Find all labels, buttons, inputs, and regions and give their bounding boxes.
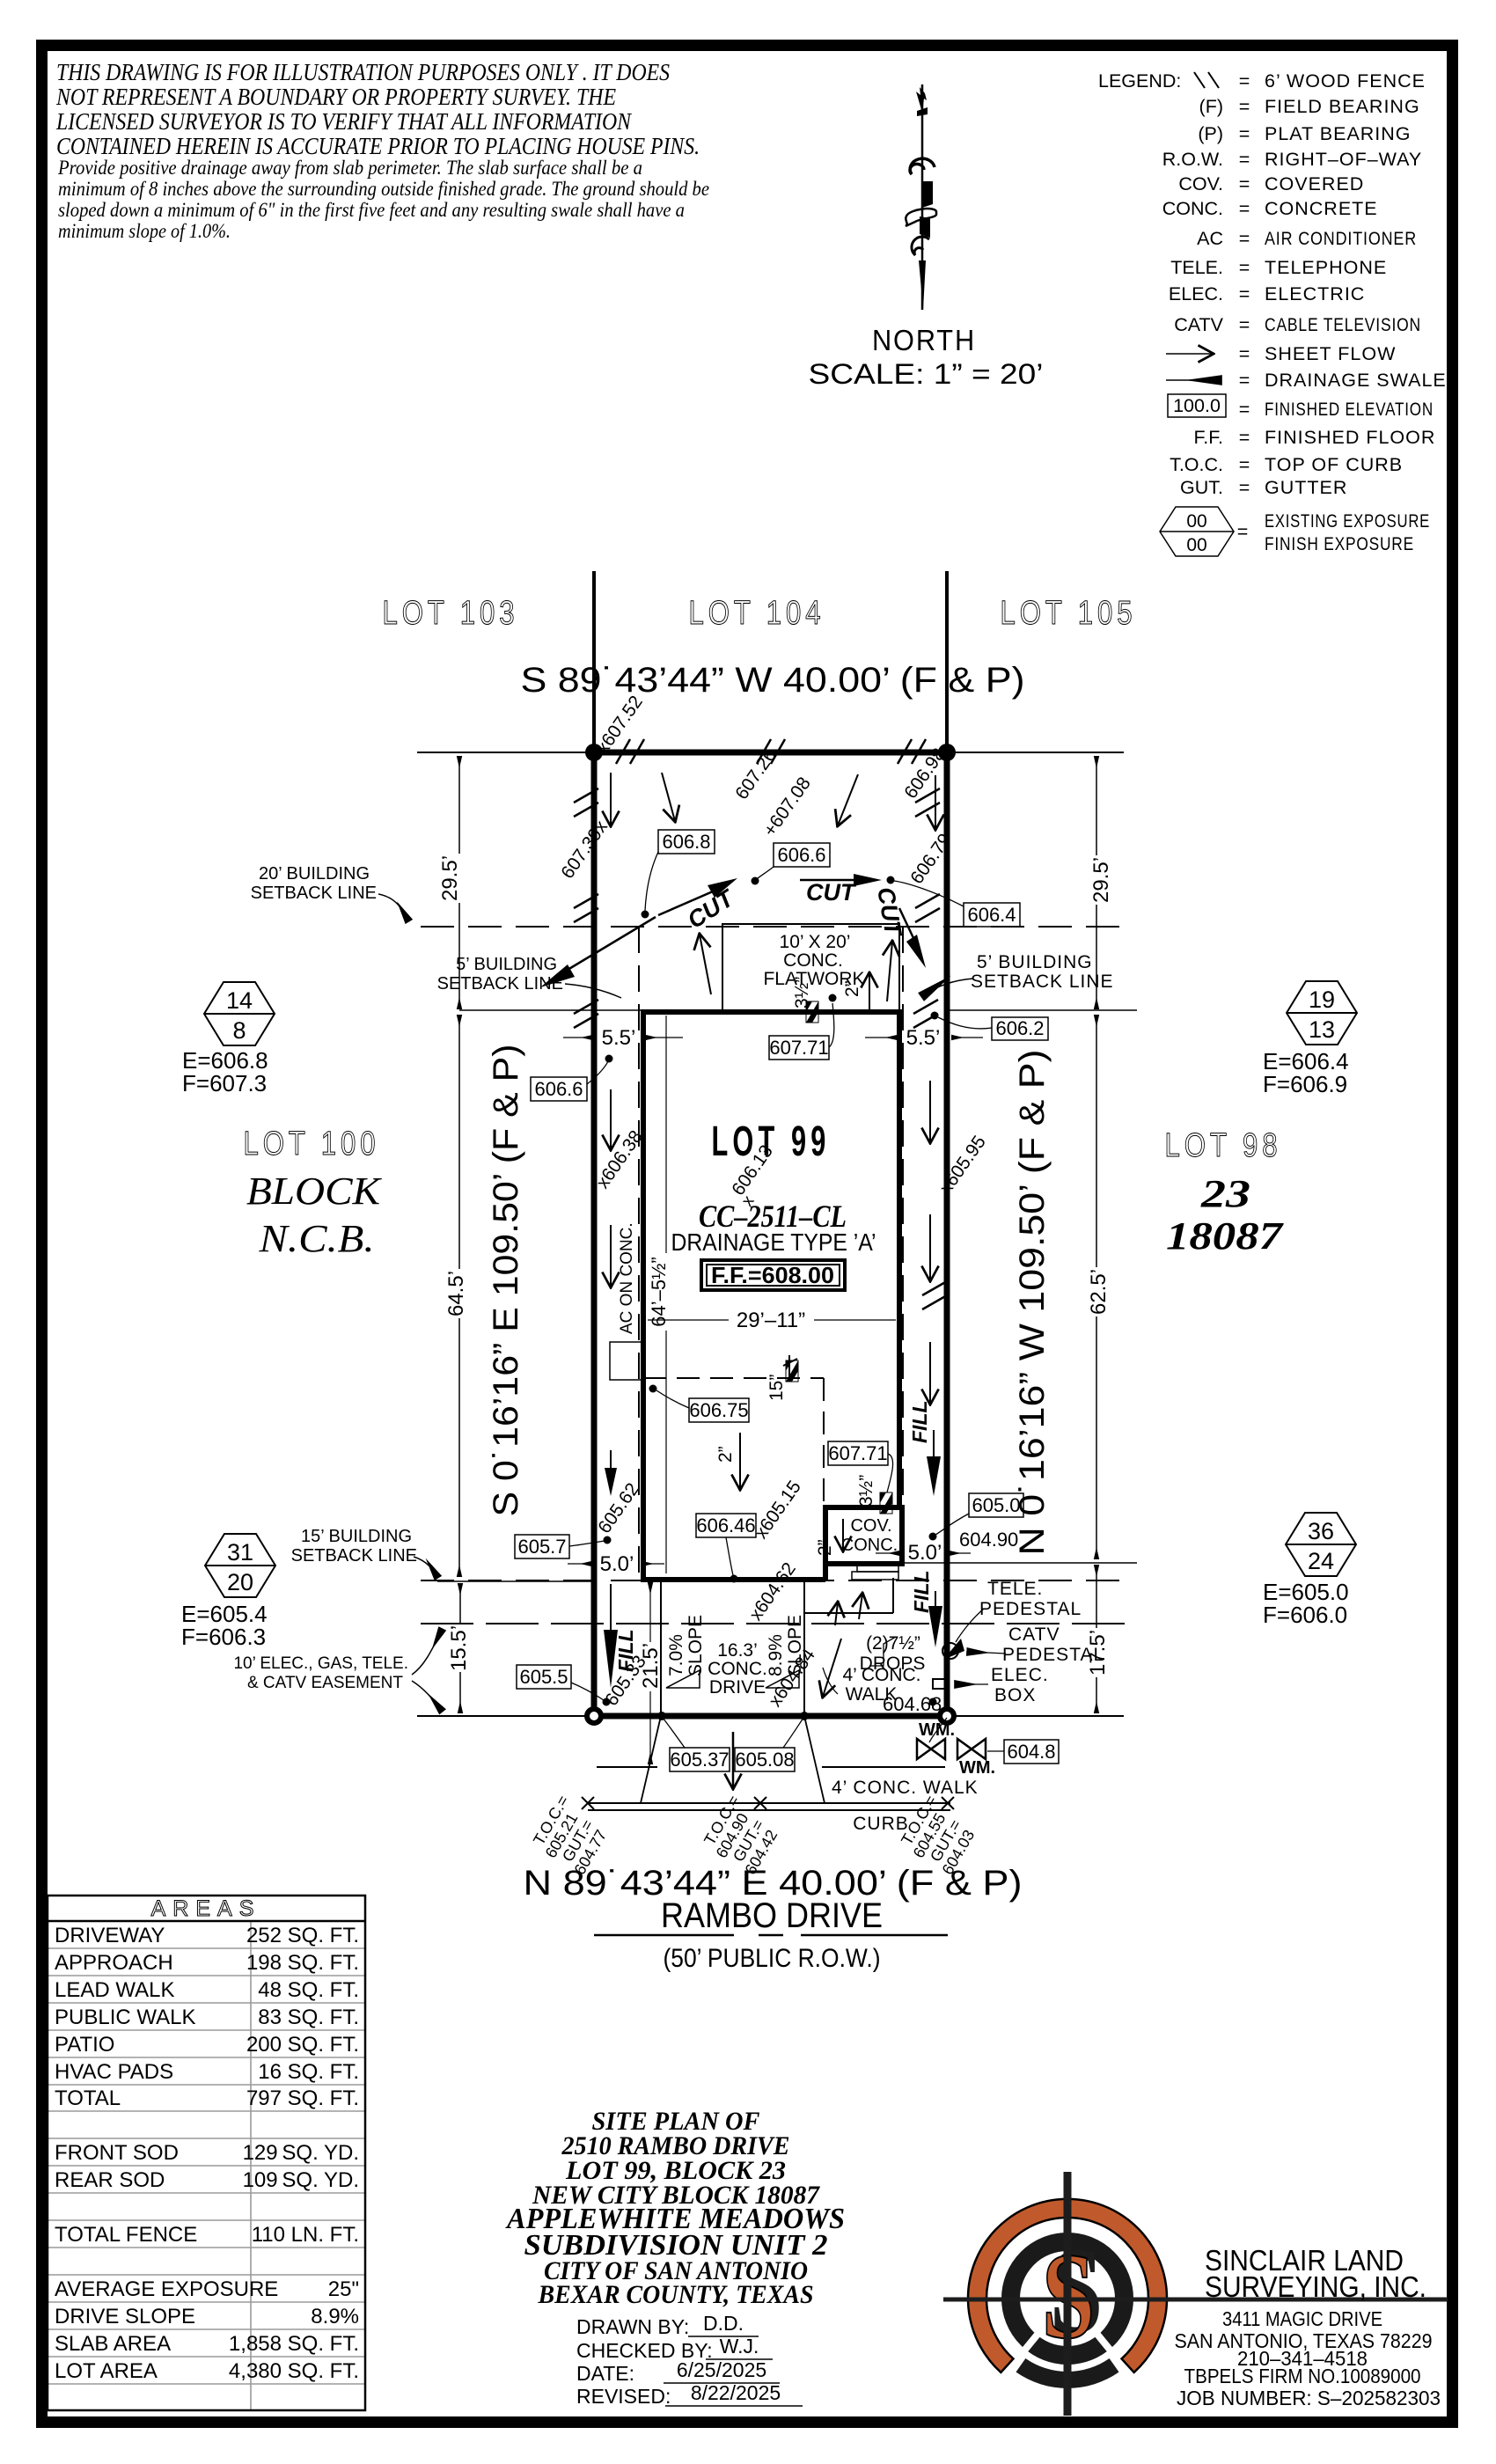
svg-text:NOT REPRESENT A BOUNDARY OR PR: NOT REPRESENT A BOUNDARY OR PROPERTY SUR… [55, 84, 616, 110]
svg-text:607.71: 607.71 [769, 1037, 828, 1059]
svg-text:5.5’: 5.5’ [602, 1026, 636, 1050]
svg-text:605.08: 605.08 [735, 1749, 794, 1771]
svg-text:607.71: 607.71 [828, 1442, 887, 1464]
svg-text:LOT 105: LOT 105 [1001, 595, 1137, 632]
svg-text:SCALE: 1” = 20’: SCALE: 1” = 20’ [809, 358, 1044, 390]
svg-text:ELECTRIC: ELECTRIC [1265, 283, 1365, 304]
svg-text:CONC.: CONC. [708, 1659, 767, 1679]
svg-text:=: = [1239, 96, 1250, 117]
svg-text:15.5’: 15.5’ [447, 1625, 471, 1671]
svg-text:LOT AREA: LOT AREA [55, 2359, 158, 2383]
svg-text:5.0’: 5.0’ [908, 1541, 942, 1565]
svg-text:=: = [1239, 477, 1250, 498]
svg-text:DRAINAGE TYPE ’A’: DRAINAGE TYPE ’A’ [671, 1228, 876, 1256]
svg-text:PUBLIC WALK: PUBLIC WALK [55, 2006, 196, 2029]
svg-text:TELE.: TELE. [987, 1579, 1043, 1599]
svg-text:SURVEYING, INC.: SURVEYING, INC. [1205, 2270, 1426, 2303]
svg-text:DRIVEWAY: DRIVEWAY [55, 1924, 165, 1947]
svg-text:=: = [1239, 314, 1250, 335]
svg-text:LEAD WALK: LEAD WALK [55, 1978, 175, 2002]
svg-text:00: 00 [1186, 511, 1206, 532]
svg-text:CONC.: CONC. [841, 1536, 898, 1555]
svg-text:SETBACK LINE: SETBACK LINE [437, 974, 563, 994]
svg-text:24: 24 [1308, 1548, 1334, 1574]
svg-text:PATIO: PATIO [55, 2033, 114, 2057]
svg-text:SLOPE: SLOPE [686, 1615, 706, 1676]
svg-text:=: = [1239, 257, 1250, 278]
svg-text:HVAC PADS: HVAC PADS [55, 2060, 173, 2084]
svg-text:=: = [1239, 123, 1250, 144]
svg-text:(P): (P) [1198, 123, 1223, 144]
svg-text:64’–5½”: 64’–5½” [648, 1257, 670, 1327]
svg-text:F.F.: F.F. [1194, 427, 1223, 448]
svg-text:BLOCK: BLOCK [246, 1170, 383, 1213]
svg-text:4’ CONC.: 4’ CONC. [842, 1665, 920, 1685]
svg-text:3411 MAGIC DRIVE: 3411 MAGIC DRIVE [1222, 2307, 1382, 2330]
svg-text:29.5’: 29.5’ [438, 855, 462, 901]
svg-text:TOTAL: TOTAL [55, 2086, 121, 2110]
svg-text:DRAINAGE SWALE: DRAINAGE SWALE [1265, 370, 1447, 391]
svg-text:BEXAR COUNTY, TEXAS: BEXAR COUNTY, TEXAS [538, 2280, 814, 2309]
svg-text:605.37: 605.37 [670, 1749, 729, 1771]
svg-text:8.9%: 8.9% [311, 2305, 359, 2328]
svg-text:5’ BUILDING: 5’ BUILDING [456, 955, 557, 974]
svg-text:606.75: 606.75 [689, 1399, 748, 1421]
svg-text:F=606.9: F=606.9 [1263, 1071, 1347, 1097]
svg-text:S 0˙16’16” E 109.50’ (F & P): S 0˙16’16” E 109.50’ (F & P) [487, 1045, 525, 1517]
svg-text:FINISH EXPOSURE: FINISH EXPOSURE [1265, 533, 1414, 554]
svg-text:29.5’: 29.5’ [1089, 857, 1113, 903]
svg-text:AREAS: AREAS [151, 1896, 261, 1921]
svg-text:REVISED:: REVISED: [576, 2385, 671, 2408]
svg-text:=: = [1237, 521, 1249, 542]
svg-text:FINISHED FLOOR: FINISHED FLOOR [1265, 427, 1435, 448]
svg-text:FRONT SOD: FRONT SOD [55, 2141, 179, 2165]
svg-text:LOT 98: LOT 98 [1165, 1127, 1282, 1164]
svg-text:2”: 2” [715, 1446, 736, 1463]
svg-text:4’ CONC. WALK: 4’ CONC. WALK [832, 1778, 979, 1798]
svg-text:100.0: 100.0 [1173, 395, 1221, 416]
svg-text:4,380 SQ. FT.: 4,380 SQ. FT. [229, 2359, 359, 2383]
svg-text:minimum of 8 inches above the: minimum of 8 inches above the surroundin… [58, 178, 709, 200]
svg-text:36: 36 [1308, 1518, 1334, 1544]
svg-text:2”: 2” [842, 980, 862, 997]
svg-text:D.D.: D.D. [703, 2312, 744, 2335]
svg-text:S 89˙43’44” W 40.00’ (F & P): S 89˙43’44” W 40.00’ (F & P) [521, 661, 1025, 700]
svg-text:APPROACH: APPROACH [55, 1951, 173, 1975]
svg-text:198 SQ. FT.: 198 SQ. FT. [246, 1951, 359, 1975]
svg-text:605.5: 605.5 [519, 1666, 568, 1688]
svg-text:SHEET FLOW: SHEET FLOW [1265, 343, 1396, 364]
svg-text:=: = [1239, 343, 1250, 364]
svg-text:20: 20 [227, 1569, 253, 1595]
svg-text:=: = [1239, 399, 1250, 420]
svg-text:LEGEND:: LEGEND: [1098, 70, 1181, 92]
svg-text:=: = [1239, 370, 1250, 391]
svg-text:606.2: 606.2 [995, 1017, 1044, 1039]
svg-text:5.0’: 5.0’ [600, 1552, 634, 1576]
svg-text:F=606.3: F=606.3 [181, 1624, 266, 1650]
svg-text:AVERAGE EXPOSURE: AVERAGE EXPOSURE [55, 2277, 278, 2301]
svg-text:14: 14 [226, 987, 253, 1014]
svg-text:2”: 2” [815, 1539, 835, 1556]
svg-text:PEDESTAL: PEDESTAL [979, 1599, 1082, 1619]
svg-text:19: 19 [1309, 986, 1335, 1013]
svg-text:LICENSED SURVEYOR IS TO VERIFY: LICENSED SURVEYOR IS TO VERIFY THAT ALL … [55, 108, 633, 135]
svg-text:AIR CONDITIONER: AIR CONDITIONER [1265, 228, 1417, 249]
svg-text:PLAT BEARING: PLAT BEARING [1265, 123, 1412, 144]
svg-text:64.5’: 64.5’ [444, 1271, 468, 1316]
svg-text:BOX: BOX [994, 1685, 1036, 1705]
svg-text:FINISHED ELEVATION: FINISHED ELEVATION [1265, 399, 1434, 420]
svg-text:110 LN. FT.: 110 LN. FT. [252, 2223, 359, 2247]
svg-text:GUTTER: GUTTER [1265, 477, 1347, 498]
svg-text:THIS DRAWING IS FOR ILLUSTRATI: THIS DRAWING IS FOR ILLUSTRATION PURPOSE… [56, 59, 670, 85]
svg-text:COV.: COV. [1178, 173, 1223, 194]
svg-text:6/25/2025: 6/25/2025 [677, 2358, 766, 2381]
svg-text:604.90: 604.90 [959, 1529, 1018, 1551]
svg-text:REAR SOD: REAR SOD [55, 2168, 165, 2192]
svg-text:minimum slope of 1.0%.: minimum slope of 1.0%. [58, 220, 231, 242]
svg-text:JOB NUMBER: S–202582303: JOB NUMBER: S–202582303 [1177, 2387, 1441, 2409]
svg-text:LOT 100: LOT 100 [244, 1126, 380, 1162]
svg-text:F=607.3: F=607.3 [182, 1070, 267, 1096]
svg-text:606.8: 606.8 [662, 831, 710, 853]
svg-text:13: 13 [1309, 1016, 1335, 1043]
svg-text:18087: 18087 [1166, 1214, 1284, 1258]
svg-text:N.C.B.: N.C.B. [258, 1217, 374, 1260]
svg-text:129 SQ. YD.: 129 SQ. YD. [243, 2141, 359, 2165]
svg-text:=: = [1239, 70, 1250, 92]
svg-text:=: = [1239, 454, 1250, 475]
svg-text:TOTAL FENCE: TOTAL FENCE [55, 2223, 197, 2247]
svg-text:=: = [1239, 228, 1250, 249]
svg-text:604.8: 604.8 [1007, 1741, 1055, 1763]
svg-text:LOT 103: LOT 103 [383, 595, 519, 632]
svg-text:83 SQ. FT.: 83 SQ. FT. [258, 2006, 359, 2029]
svg-text:(2)7½”: (2)7½” [866, 1633, 920, 1654]
svg-text:EXISTING EXPOSURE: EXISTING EXPOSURE [1265, 510, 1430, 532]
svg-text:25": 25" [328, 2277, 359, 2301]
svg-text:FILL: FILL [910, 1570, 933, 1613]
svg-text:CONTAINED HEREIN IS ACCURATE P: CONTAINED HEREIN IS ACCURATE PRIOR TO PL… [56, 133, 700, 159]
svg-text:NORTH: NORTH [872, 324, 976, 356]
svg-text:605.0: 605.0 [972, 1494, 1020, 1516]
svg-text:10’ ELEC., GAS, TELE.: 10’ ELEC., GAS, TELE. [233, 1654, 408, 1673]
svg-text:=: = [1239, 198, 1250, 219]
svg-text:48 SQ. FT.: 48 SQ. FT. [258, 1978, 359, 2002]
svg-text:GUT.: GUT. [1180, 477, 1223, 498]
svg-text:606.4: 606.4 [967, 904, 1016, 926]
svg-text:CONC.: CONC. [783, 950, 843, 971]
svg-text:TELE.: TELE. [1170, 257, 1223, 278]
svg-text:F.F.=608.00: F.F.=608.00 [711, 1262, 834, 1288]
svg-text:(50’ PUBLIC R.O.W.): (50’ PUBLIC R.O.W.) [664, 1944, 881, 1973]
svg-text:PEDESTAL: PEDESTAL [1002, 1645, 1104, 1665]
svg-text:CATV: CATV [1008, 1624, 1060, 1645]
svg-text:Provide positive drainage away: Provide positive drainage away from slab… [57, 157, 642, 179]
svg-text:T.O.C.: T.O.C. [1170, 454, 1223, 475]
svg-text:3½”: 3½” [856, 1475, 876, 1507]
svg-text:CATV: CATV [1174, 314, 1223, 335]
svg-text:16.3’: 16.3’ [717, 1640, 758, 1661]
svg-text:6’ WOOD FENCE: 6’ WOOD FENCE [1265, 70, 1426, 92]
svg-text:252 SQ. FT.: 252 SQ. FT. [246, 1924, 359, 1947]
svg-text:31: 31 [227, 1539, 253, 1566]
svg-text:FIELD BEARING: FIELD BEARING [1265, 96, 1420, 117]
svg-text:CONCRETE: CONCRETE [1265, 198, 1378, 219]
svg-text:SETBACK LINE: SETBACK LINE [971, 972, 1114, 992]
svg-text:=: = [1239, 149, 1250, 170]
svg-text:7.0%: 7.0% [666, 1634, 686, 1676]
svg-text:SETBACK LINE: SETBACK LINE [291, 1546, 417, 1566]
svg-text:200 SQ. FT.: 200 SQ. FT. [246, 2033, 359, 2057]
svg-text:TOP OF CURB: TOP OF CURB [1265, 454, 1403, 475]
svg-text:CONC.: CONC. [1162, 198, 1223, 219]
svg-text:8.9%: 8.9% [766, 1634, 786, 1676]
svg-text:WM.: WM. [959, 1758, 995, 1778]
svg-text:DATE:: DATE: [576, 2362, 634, 2385]
svg-text:606.46: 606.46 [696, 1514, 755, 1536]
svg-text:SLAB AREA: SLAB AREA [55, 2332, 171, 2356]
svg-text:AC: AC [1197, 228, 1223, 249]
svg-text:605.7: 605.7 [517, 1536, 566, 1558]
svg-text:CUT: CUT [806, 879, 857, 906]
svg-text:29’–11”: 29’–11” [737, 1309, 805, 1332]
svg-text:ELEC.: ELEC. [991, 1665, 1049, 1685]
svg-text:ELEC.: ELEC. [1169, 283, 1223, 304]
svg-text:F=606.0: F=606.0 [1263, 1602, 1347, 1628]
svg-text:COV.: COV. [850, 1516, 891, 1536]
svg-text:62.5’: 62.5’ [1087, 1269, 1111, 1315]
svg-text:LOT 104: LOT 104 [689, 595, 825, 632]
svg-text:5’ BUILDING: 5’ BUILDING [977, 952, 1093, 972]
svg-text:CABLE TELEVISION: CABLE TELEVISION [1265, 314, 1421, 335]
svg-text:23: 23 [1200, 1172, 1250, 1215]
svg-text:COVERED: COVERED [1265, 173, 1364, 194]
svg-text:=: = [1239, 283, 1250, 304]
svg-text:AC ON CONC.: AC ON CONC. [618, 1222, 636, 1334]
svg-text:15’ BUILDING: 15’ BUILDING [301, 1527, 412, 1546]
svg-text:& CATV EASEMENT: & CATV EASEMENT [247, 1674, 403, 1692]
svg-text:RIGHT–OF–WAY: RIGHT–OF–WAY [1265, 149, 1422, 170]
svg-text:=: = [1239, 173, 1250, 194]
svg-text:RAMBO DRIVE: RAMBO DRIVE [661, 1896, 883, 1935]
svg-text:(F): (F) [1199, 96, 1223, 117]
svg-text:R.O.W.: R.O.W. [1162, 149, 1223, 170]
svg-text:109 SQ. YD.: 109 SQ. YD. [243, 2168, 359, 2192]
svg-text:DRIVE SLOPE: DRIVE SLOPE [55, 2305, 195, 2328]
svg-text:606.6: 606.6 [777, 844, 825, 866]
svg-text:8/22/2025: 8/22/2025 [691, 2381, 781, 2404]
svg-text:00: 00 [1186, 535, 1206, 555]
svg-text:SETBACK LINE: SETBACK LINE [251, 884, 377, 903]
svg-text:10’ X 20’: 10’ X 20’ [780, 932, 851, 952]
svg-text:1,858 SQ. FT.: 1,858 SQ. FT. [229, 2332, 359, 2356]
svg-text:15”: 15” [766, 1375, 787, 1401]
svg-text:CURB: CURB [853, 1814, 909, 1834]
svg-text:FILL: FILL [908, 1400, 931, 1443]
svg-text:8: 8 [232, 1017, 246, 1044]
svg-text:=: = [1239, 427, 1250, 448]
svg-text:16 SQ. FT.: 16 SQ. FT. [258, 2060, 359, 2084]
svg-text:5.5’: 5.5’ [906, 1026, 941, 1050]
svg-text:TBPELS FIRM NO.10089000: TBPELS FIRM NO.10089000 [1184, 2365, 1421, 2387]
svg-text:20’ BUILDING: 20’ BUILDING [259, 864, 370, 884]
svg-text:797 SQ. FT.: 797 SQ. FT. [246, 2086, 359, 2110]
svg-text:N 0˙16’16” W 109.50’ (F & P): N 0˙16’16” W 109.50’ (F & P) [1013, 1050, 1052, 1556]
svg-text:TELEPHONE: TELEPHONE [1265, 257, 1387, 278]
svg-text:DRIVE: DRIVE [709, 1677, 766, 1698]
svg-text:DRAWN BY:: DRAWN BY: [576, 2315, 689, 2338]
svg-text:606.6: 606.6 [534, 1078, 583, 1100]
svg-text:WALK: WALK [846, 1684, 898, 1705]
svg-text:W.J.: W.J. [720, 2335, 759, 2358]
svg-text:sloped down a minimum of 6" in: sloped down a minimum of 6" in the first… [58, 199, 685, 221]
